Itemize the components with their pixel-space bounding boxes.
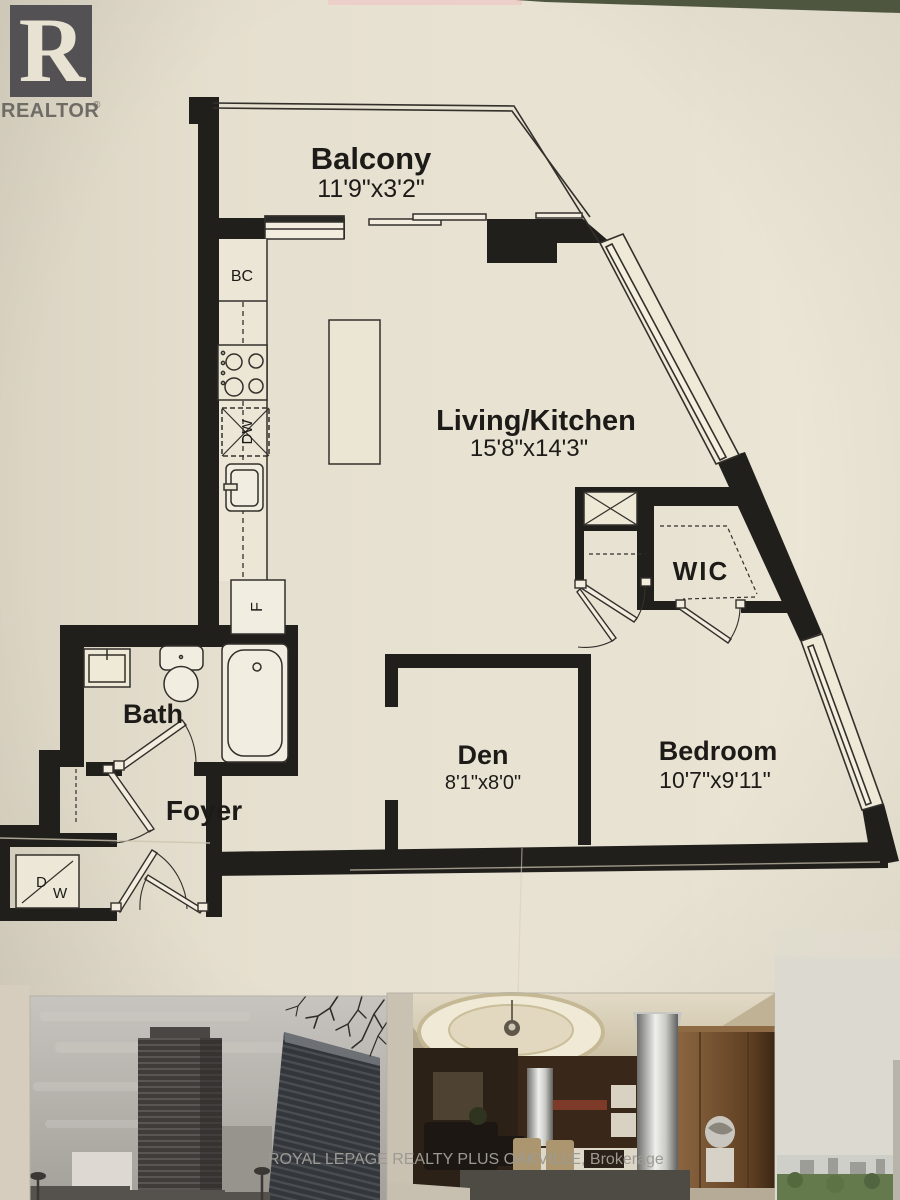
- svg-text:W: W: [53, 885, 68, 902]
- svg-text:10'7"x9'11": 10'7"x9'11": [659, 767, 771, 793]
- svg-text:8'1"x8'0": 8'1"x8'0": [445, 772, 521, 794]
- svg-text:15'8"x14'3": 15'8"x14'3": [470, 435, 588, 462]
- svg-text:®: ®: [93, 100, 101, 111]
- svg-text:WIC: WIC: [673, 556, 730, 586]
- svg-text:Bath: Bath: [123, 699, 183, 729]
- svg-text:F: F: [249, 602, 266, 612]
- svg-text:Foyer: Foyer: [166, 795, 242, 826]
- svg-text:Bedroom: Bedroom: [659, 736, 778, 766]
- svg-text:D: D: [36, 874, 47, 891]
- svg-text:Den: Den: [457, 740, 508, 770]
- svg-text:Living/Kitchen: Living/Kitchen: [436, 405, 636, 437]
- svg-text:REALTOR: REALTOR: [1, 100, 99, 122]
- svg-text:ROYAL LEPAGE REALTY PLUS OAKVI: ROYAL LEPAGE REALTY PLUS OAKVILLE, Broke…: [268, 1151, 664, 1168]
- svg-text:R: R: [19, 0, 87, 101]
- svg-text:11'9"x3'2": 11'9"x3'2": [317, 175, 424, 203]
- svg-text:Balcony: Balcony: [311, 141, 432, 176]
- svg-text:DW: DW: [239, 419, 256, 445]
- svg-text:BC: BC: [231, 268, 253, 285]
